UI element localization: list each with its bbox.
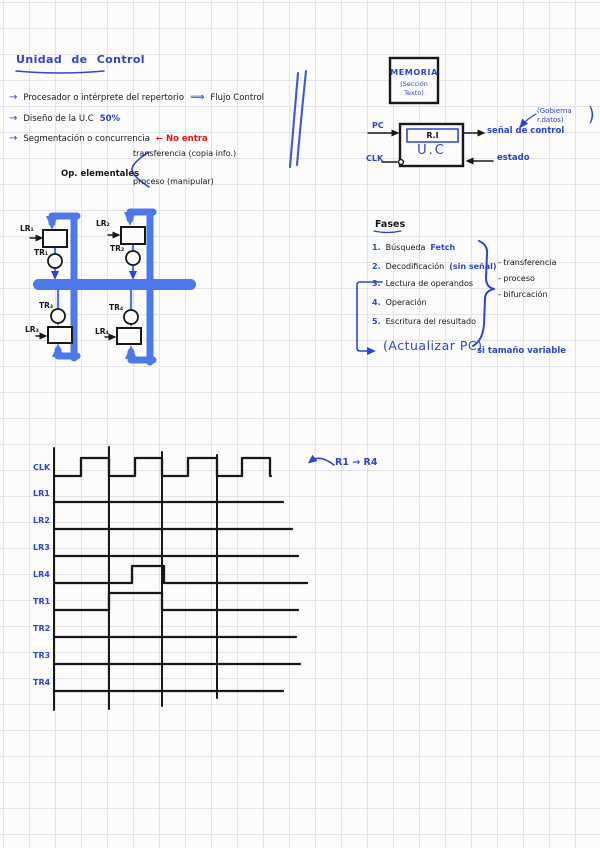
fases-underline bbox=[374, 231, 401, 233]
timing-label-lr2: LR2 bbox=[33, 516, 50, 525]
timing-label-tr4: TR4 bbox=[33, 678, 50, 687]
arrow-icon: → bbox=[9, 92, 17, 103]
margin-stroke-2 bbox=[297, 71, 306, 165]
lr4-label: LR₄ bbox=[95, 327, 109, 336]
data-bus bbox=[33, 279, 196, 290]
buffer-tr1 bbox=[48, 254, 62, 268]
tr4-label: TR₄ bbox=[109, 303, 123, 312]
timing-label-tr3: TR3 bbox=[33, 651, 50, 660]
lr1-label: LR₁ bbox=[20, 224, 34, 233]
timing-label-clk: CLK bbox=[33, 463, 50, 472]
margin-stroke-1 bbox=[290, 73, 298, 167]
register-lr1 bbox=[43, 230, 67, 247]
notebook-page: Unidad de Control → Procesador o intérpr… bbox=[0, 0, 600, 848]
lr2-label: LR₂ bbox=[96, 219, 110, 228]
timing-label-lr3: LR3 bbox=[33, 543, 50, 552]
fase-item: 1.BúsquedaFetch bbox=[372, 243, 455, 252]
fases-brace bbox=[473, 241, 494, 346]
fase-side-item: - bifurcación bbox=[498, 290, 548, 299]
bullet-highlight: 50% bbox=[100, 114, 120, 124]
timing-label-tr1: TR1 bbox=[33, 597, 50, 606]
bullet-text: Diseño de la U.C bbox=[23, 114, 93, 124]
register-lr3 bbox=[48, 327, 72, 343]
implies-icon: ⟹ bbox=[190, 92, 204, 103]
bullet-processor: → Procesador o intérprete del repertorio… bbox=[9, 92, 264, 103]
timing-label-tr2: TR2 bbox=[33, 624, 50, 633]
timing-diagram bbox=[54, 447, 307, 710]
buffer-tr4 bbox=[124, 310, 138, 324]
uc-label: U.C bbox=[400, 143, 463, 158]
bullet-warning: ← No entra bbox=[156, 134, 208, 144]
ops-branch-process: proceso (manipular) bbox=[133, 177, 214, 186]
state-out-label: estado bbox=[497, 153, 530, 163]
bullet-diseno: → Diseño de la U.C 50% bbox=[9, 113, 120, 124]
note-paren: ) bbox=[588, 104, 595, 127]
fase-item: 2.Decodificación(sin señal) bbox=[372, 262, 497, 271]
page-title: Unidad de Control bbox=[16, 53, 145, 66]
tr3-label: TR₃ bbox=[39, 301, 53, 310]
ops-label: Op. elementales bbox=[61, 169, 139, 179]
bullet-tail: Flujo Control bbox=[210, 93, 264, 103]
title-underline bbox=[16, 71, 104, 73]
fase-side-item: - transferencia bbox=[498, 258, 556, 267]
gobierna-arrow bbox=[522, 114, 536, 125]
bullet-segmentacion: → Segmentación o concurrencia ← No entra bbox=[9, 133, 208, 144]
annotation-arrow bbox=[311, 458, 334, 465]
bullet-text: Segmentación o concurrencia bbox=[23, 134, 150, 144]
buffer-tr2 bbox=[126, 251, 140, 265]
ri-label: R.I bbox=[407, 131, 458, 140]
signal-out-label: señal de control bbox=[487, 126, 564, 136]
lr3-label: LR₃ bbox=[25, 325, 39, 334]
ops-branch-transfer: transferencia (copia info.) bbox=[133, 149, 236, 158]
register-lr4 bbox=[117, 328, 141, 344]
timing-annotation: R1 → R4 bbox=[335, 457, 377, 468]
signal-note: (Gobierna r.datos) bbox=[537, 107, 589, 125]
memoria-subtitle: (Sección Texto) bbox=[391, 80, 437, 98]
register-bus-diagram bbox=[30, 212, 196, 362]
timing-label-lr1: LR1 bbox=[33, 489, 50, 498]
pc-update-note: (Actualizar PC) bbox=[383, 338, 483, 353]
bullet-text: Procesador o intérprete del repertorio bbox=[23, 93, 184, 103]
fase-item: 3.Lectura de operandos bbox=[372, 279, 473, 288]
pc-label: PC bbox=[372, 121, 384, 130]
tr2-label: TR₂ bbox=[110, 244, 124, 253]
pc-update-detail: si tamaño variable bbox=[477, 346, 566, 356]
arrow-icon: → bbox=[9, 113, 17, 124]
arrow-icon: → bbox=[9, 133, 17, 144]
fase-side-item: - proceso bbox=[498, 274, 535, 283]
buffer-tr3 bbox=[51, 309, 65, 323]
memoria-title: MEMORIA bbox=[390, 68, 438, 77]
fase-item: 5.Escritura del resultado bbox=[372, 317, 476, 326]
clk-label: CLK bbox=[366, 154, 383, 163]
tr1-label: TR₁ bbox=[34, 248, 48, 257]
register-lr2 bbox=[121, 227, 145, 244]
fase-item: 4.Operación bbox=[372, 298, 427, 307]
fases-title: Fases bbox=[375, 219, 405, 230]
timing-label-lr4: LR4 bbox=[33, 570, 50, 579]
